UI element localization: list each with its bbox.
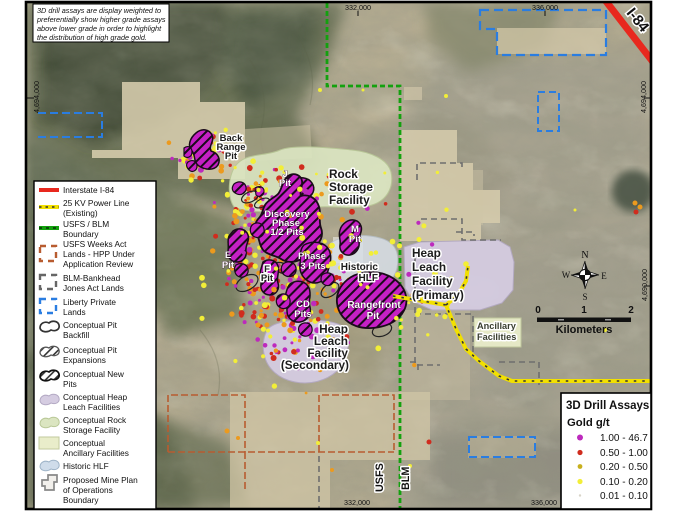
- svg-text:4,694,000: 4,694,000: [32, 81, 41, 113]
- svg-text:25 KV Power Line: 25 KV Power Line: [63, 198, 130, 208]
- svg-text:(Secondary): (Secondary): [281, 358, 349, 372]
- svg-text:1: 1: [581, 305, 587, 316]
- svg-text:W: W: [562, 270, 571, 280]
- svg-text:USFS / BLM: USFS / BLM: [63, 219, 109, 229]
- svg-text:Boundary: Boundary: [63, 229, 99, 239]
- svg-text:Conceptual: Conceptual: [63, 438, 105, 448]
- svg-text:Pit: Pit: [367, 311, 380, 322]
- svg-text:Ancillary Facilities: Ancillary Facilities: [63, 448, 129, 458]
- svg-text:USFS Weeks Act: USFS Weeks Act: [63, 239, 127, 249]
- svg-text:Proposed Mine Plan: Proposed Mine Plan: [63, 475, 138, 485]
- svg-text:Pit: Pit: [261, 273, 274, 284]
- svg-text:Conceptual Heap: Conceptual Heap: [63, 392, 128, 402]
- svg-text:Expansions: Expansions: [63, 355, 106, 365]
- svg-text:Pit: Pit: [222, 260, 235, 271]
- svg-text:Facility: Facility: [412, 274, 453, 288]
- svg-text:Storage: Storage: [329, 180, 373, 194]
- svg-text:Application Review: Application Review: [63, 259, 134, 269]
- svg-text:Backfill: Backfill: [63, 330, 89, 340]
- svg-text:Pit: Pit: [349, 234, 362, 245]
- svg-text:Leach Facilities: Leach Facilities: [63, 402, 120, 412]
- svg-text:1.00 - 46.7: 1.00 - 46.7: [600, 433, 648, 444]
- svg-text:Historic HLF: Historic HLF: [63, 461, 109, 471]
- svg-text:332,000: 332,000: [345, 3, 371, 12]
- svg-text:332,000: 332,000: [344, 498, 370, 507]
- svg-text:of Operations: of Operations: [63, 485, 113, 495]
- svg-text:0.01 - 0.10: 0.01 - 0.10: [600, 491, 648, 502]
- svg-text:Historic: Historic: [341, 262, 379, 273]
- svg-text:Jones Act Lands: Jones Act Lands: [63, 283, 124, 293]
- svg-text:Facility: Facility: [329, 193, 370, 207]
- svg-text:2: 2: [628, 305, 634, 316]
- svg-text:Pit: Pit: [279, 178, 292, 189]
- svg-text:(Existing): (Existing): [63, 208, 98, 218]
- svg-text:USFS: USFS: [374, 463, 386, 492]
- svg-text:HLF: HLF: [359, 273, 378, 284]
- svg-text:Ancillary: Ancillary: [477, 321, 517, 331]
- svg-text:Storage Facility: Storage Facility: [63, 425, 121, 435]
- svg-text:0.20 - 0.50: 0.20 - 0.50: [600, 462, 648, 473]
- svg-text:0.10 - 0.20: 0.10 - 0.20: [600, 477, 648, 488]
- svg-text:Leach: Leach: [412, 260, 446, 274]
- svg-text:BLM-Bankhead: BLM-Bankhead: [63, 273, 121, 283]
- svg-text:(Primary): (Primary): [412, 288, 464, 302]
- svg-text:Rangefront: Rangefront: [347, 300, 401, 311]
- svg-text:Conceptual Pit: Conceptual Pit: [63, 345, 118, 355]
- svg-text:the distribution of high grade: the distribution of high grade gold.: [37, 33, 147, 42]
- svg-text:3D drill assays are display we: 3D drill assays are display weighted to: [37, 6, 161, 15]
- svg-text:336,000: 336,000: [531, 498, 557, 507]
- svg-text:4,694,000: 4,694,000: [639, 81, 648, 113]
- svg-text:0.50 - 1.00: 0.50 - 1.00: [600, 448, 648, 459]
- svg-text:Facilities: Facilities: [477, 332, 516, 342]
- svg-text:Gold g/t: Gold g/t: [567, 417, 610, 429]
- svg-text:Conceptual Rock: Conceptual Rock: [63, 415, 127, 425]
- svg-text:Heap: Heap: [412, 246, 441, 260]
- svg-text:Pit: Pit: [225, 151, 238, 162]
- svg-text:Pits: Pits: [294, 309, 311, 320]
- svg-text:N: N: [581, 250, 588, 261]
- svg-text:Kilometers: Kilometers: [556, 324, 613, 336]
- svg-text:3 Pits: 3 Pits: [300, 261, 325, 272]
- svg-text:preferentially show higher gra: preferentially show higher grade assays: [36, 15, 166, 24]
- svg-text:Boundary: Boundary: [63, 495, 99, 505]
- svg-text:Pits: Pits: [63, 379, 77, 389]
- svg-text:Conceptual Pit: Conceptual Pit: [63, 320, 118, 330]
- svg-text:0: 0: [535, 305, 541, 316]
- svg-text:Conceptual New: Conceptual New: [63, 369, 125, 379]
- svg-text:Liberty Private: Liberty Private: [63, 297, 116, 307]
- svg-text:4,690,000: 4,690,000: [640, 269, 649, 301]
- svg-text:3D Drill Assays: 3D Drill Assays: [566, 400, 649, 412]
- svg-text:Lands: Lands: [63, 307, 86, 317]
- svg-text:336,000: 336,000: [532, 3, 558, 12]
- svg-text:Interstate I-84: Interstate I-84: [63, 185, 115, 195]
- svg-text:Lands - HPP Under: Lands - HPP Under: [63, 249, 135, 259]
- svg-text:BLM: BLM: [400, 467, 412, 490]
- svg-text:1/2 Pits: 1/2 Pits: [270, 227, 303, 238]
- svg-text:S: S: [582, 292, 587, 302]
- svg-text:Rock: Rock: [329, 167, 358, 181]
- svg-text:above lower grade in order to: above lower grade in order to highlight: [37, 24, 162, 33]
- svg-text:E: E: [601, 271, 607, 281]
